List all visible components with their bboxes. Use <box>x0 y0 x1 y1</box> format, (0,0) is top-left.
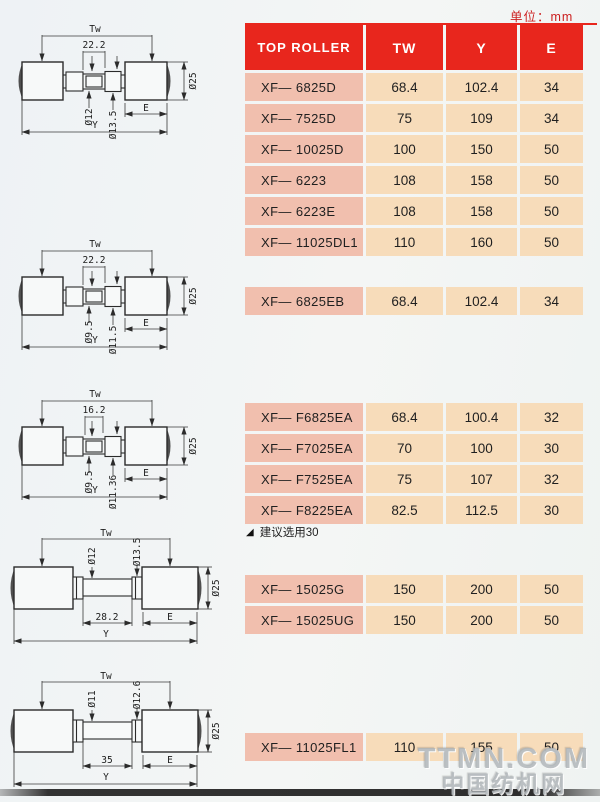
roller-shape <box>11 710 202 752</box>
model-cell: XF— 6825EB <box>245 287 363 315</box>
tw-cell: 68.4 <box>366 73 443 101</box>
table-row: XF— 6223E 108 158 50 <box>245 197 583 225</box>
model-cell: XF— F8225EA <box>245 496 363 524</box>
y-cell: 158 <box>446 166 517 194</box>
dim-label-roller-dia: Ø25 <box>211 579 222 596</box>
roller-diagram-1: Tw 22.2 Ø12 Ø13.5 Ø25 E Y <box>0 15 240 150</box>
tw-cell: 110 <box>366 228 443 256</box>
dim-label-bush: Ø11.5 <box>108 326 119 355</box>
dim-label-tw: Tw <box>89 389 101 400</box>
roller-shape <box>19 62 171 100</box>
tw-cell: 68.4 <box>366 403 443 431</box>
y-cell: 160 <box>446 228 517 256</box>
roller-diagram-4: Tw Ø12 Ø13.5 28.2 E Y Ø25 <box>0 525 240 660</box>
roller-diagram-2: Tw 22.2 Ø9.5 Ø11.5 Ø25 E Y <box>0 230 240 365</box>
table-row: XF— F8225EA 82.5 112.5 30 <box>245 496 583 524</box>
dim-label-tw: Tw <box>100 528 112 539</box>
dim-label-roller-dia: Ø25 <box>188 72 199 89</box>
model-cell: XF— 6223 <box>245 166 363 194</box>
dim-label-y: Y <box>92 335 98 346</box>
dim-label-bush: Ø12.6 <box>132 680 143 709</box>
dim-label-y: Y <box>92 485 98 496</box>
table-row: XF— F7525EA 75 107 32 <box>245 465 583 493</box>
table-row: XF— 6825D 68.4 102.4 34 <box>245 73 583 101</box>
y-cell: 200 <box>446 606 517 634</box>
dim-label-tw: Tw <box>89 239 101 250</box>
e-cell: 32 <box>520 403 583 431</box>
header-y: Y <box>446 25 517 70</box>
tw-cell: 150 <box>366 575 443 603</box>
tw-cell: 108 <box>366 166 443 194</box>
model-cell: XF— 11025FL1 <box>245 733 363 761</box>
spec-table-block-1: TOP ROLLER TW Y E XF— 6825D 68.4 102.4 3… <box>245 25 583 259</box>
table-row: XF— F7025EA 70 100 30 <box>245 434 583 462</box>
model-cell: XF— F7025EA <box>245 434 363 462</box>
dim-label-roller-dia: Ø25 <box>211 722 222 739</box>
e-cell: 50 <box>520 135 583 163</box>
dim-label-bush: Ø13.5 <box>132 538 143 567</box>
tw-cell: 100 <box>366 135 443 163</box>
dim-label-bore: Ø11 <box>87 690 98 707</box>
e-cell: 50 <box>520 228 583 256</box>
model-cell: XF— 7525D <box>245 104 363 132</box>
y-cell: 150 <box>446 135 517 163</box>
roller-diagram-3: Tw 16.2 Ø9.5 Ø11.36 Ø25 E Y <box>0 380 240 515</box>
dim-label-e: E <box>143 468 149 479</box>
e-cell: 50 <box>520 166 583 194</box>
model-cell: XF— F7525EA <box>245 465 363 493</box>
dim-label-roller-dia: Ø25 <box>188 287 199 304</box>
y-cell: 200 <box>446 575 517 603</box>
note-triangle-icon: ◢ <box>246 527 254 538</box>
catalog-page: Tw 22.2 Ø12 Ø13.5 Ø25 E Y <box>0 0 600 802</box>
dim-label-roller-dia: Ø25 <box>188 437 199 454</box>
dim-label-width: 22.2 <box>83 255 106 266</box>
model-cell: XF— 6825D <box>245 73 363 101</box>
tw-cell: 68.4 <box>366 287 443 315</box>
table-row: XF— 11025DL1 110 160 50 <box>245 228 583 256</box>
y-cell: 102.4 <box>446 73 517 101</box>
roller-shape <box>19 277 171 315</box>
header-tw: TW <box>366 25 443 70</box>
tw-cell: 70 <box>366 434 443 462</box>
e-cell: 50 <box>520 575 583 603</box>
roller-shape <box>19 427 171 465</box>
dim-label-e: E <box>167 612 173 623</box>
watermark-site: TTMN.COM <box>418 746 590 772</box>
dim-label-bore: Ø12 <box>87 547 98 564</box>
tw-cell: 75 <box>366 104 443 132</box>
e-cell: 30 <box>520 434 583 462</box>
dim-label-width: 16.2 <box>83 405 106 416</box>
tw-cell: 82.5 <box>366 496 443 524</box>
dim-label-e: E <box>167 755 173 766</box>
dim-label-e: E <box>143 103 149 114</box>
table-row: XF— 15025G 150 200 50 <box>245 575 583 603</box>
e-cell: 34 <box>520 287 583 315</box>
dim-label-width: 28.2 <box>96 612 119 623</box>
recommendation-note: ◢ 建议选用30 <box>246 524 319 540</box>
table-header-row: TOP ROLLER TW Y E <box>245 25 583 70</box>
e-cell: 34 <box>520 104 583 132</box>
roller-shape <box>11 567 202 609</box>
dim-label-y: Y <box>103 772 109 783</box>
e-cell: 50 <box>520 606 583 634</box>
dim-label-y: Y <box>92 120 98 131</box>
watermark-name: 中国纺机网 <box>418 772 590 796</box>
e-cell: 32 <box>520 465 583 493</box>
table-row: XF— 6223 108 158 50 <box>245 166 583 194</box>
header-e: E <box>520 25 583 70</box>
e-cell: 34 <box>520 73 583 101</box>
tw-cell: 75 <box>366 465 443 493</box>
model-cell: XF— 15025G <box>245 575 363 603</box>
tw-cell: 108 <box>366 197 443 225</box>
dim-label-y: Y <box>103 629 109 640</box>
y-cell: 102.4 <box>446 287 517 315</box>
model-cell: XF— 15025UG <box>245 606 363 634</box>
e-cell: 50 <box>520 197 583 225</box>
y-cell: 100.4 <box>446 403 517 431</box>
table-row: XF— 7525D 75 109 34 <box>245 104 583 132</box>
model-cell: XF— 10025D <box>245 135 363 163</box>
header-model: TOP ROLLER <box>245 25 363 70</box>
y-cell: 107 <box>446 465 517 493</box>
model-cell: XF— 11025DL1 <box>245 228 363 256</box>
watermark: TTMN.COM 中国纺机网 <box>418 746 590 796</box>
dim-label-tw: Tw <box>89 24 101 35</box>
table-row: XF— 15025UG 150 200 50 <box>245 606 583 634</box>
tw-cell: 150 <box>366 606 443 634</box>
model-cell: XF— 6223E <box>245 197 363 225</box>
dim-label-width: 22.2 <box>83 40 106 51</box>
spec-table-block-4: XF— 15025G 150 200 50 XF— 15025UG 150 20… <box>245 575 583 637</box>
spec-table-block-3: XF— F6825EA 68.4 100.4 32 XF— F7025EA 70… <box>245 403 583 527</box>
e-cell: 30 <box>520 496 583 524</box>
y-cell: 100 <box>446 434 517 462</box>
table-row: XF— F6825EA 68.4 100.4 32 <box>245 403 583 431</box>
dim-label-bush: Ø13.5 <box>108 111 119 140</box>
note-text: 建议选用30 <box>260 524 319 540</box>
dim-label-width: 35 <box>101 755 112 766</box>
y-cell: 112.5 <box>446 496 517 524</box>
table-row: XF— 10025D 100 150 50 <box>245 135 583 163</box>
spec-table-block-2: XF— 6825EB 68.4 102.4 34 <box>245 287 583 318</box>
roller-diagram-5: Tw Ø11 Ø12.6 35 E Y Ø25 <box>0 668 240 802</box>
dim-label-tw: Tw <box>100 671 112 682</box>
dim-label-bush: Ø11.36 <box>108 475 119 510</box>
y-cell: 109 <box>446 104 517 132</box>
dim-label-e: E <box>143 318 149 329</box>
y-cell: 158 <box>446 197 517 225</box>
table-row: XF— 6825EB 68.4 102.4 34 <box>245 287 583 315</box>
model-cell: XF— F6825EA <box>245 403 363 431</box>
